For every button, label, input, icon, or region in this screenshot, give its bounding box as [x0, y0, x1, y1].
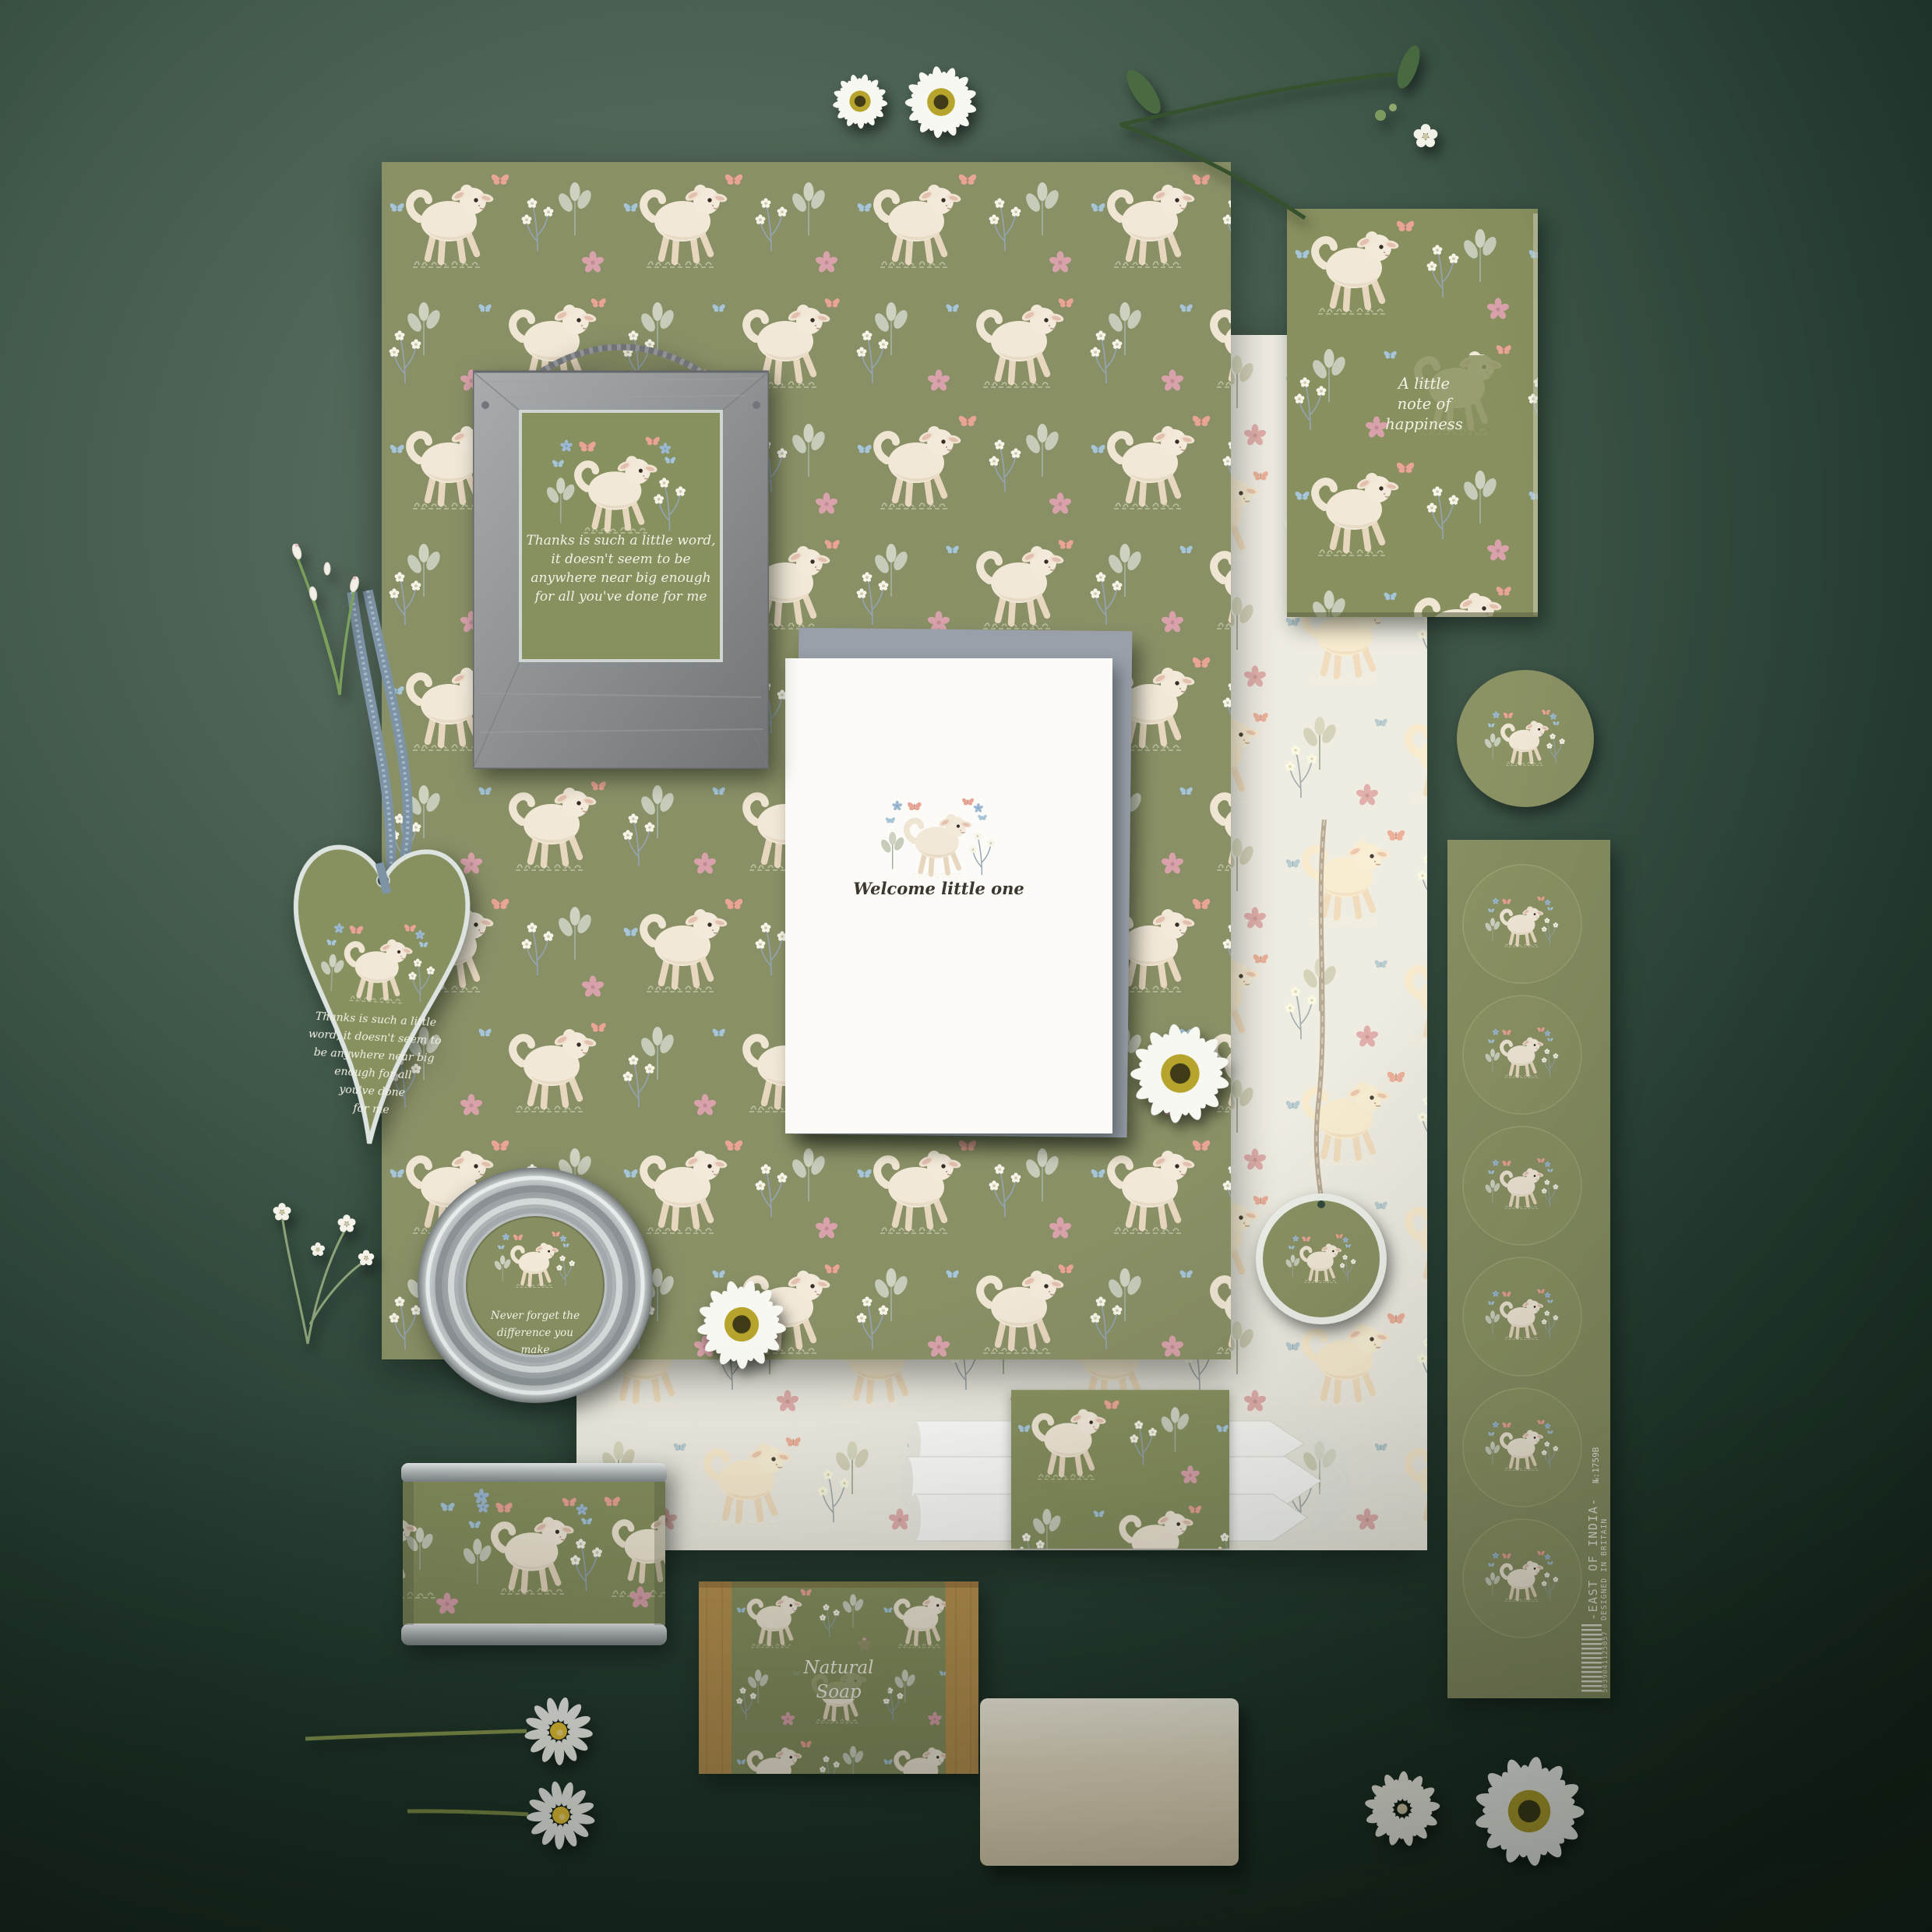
heart-verse: Thanks is such a little word, it doesn't…	[285, 1007, 462, 1123]
lid-caption: Never forget the difference you make	[457, 1307, 613, 1359]
brand-origin: DESIGNED IN BRITAIN	[1600, 1504, 1609, 1620]
daisy-bottom-right-large	[1456, 1739, 1602, 1884]
barcode-digits: 5039041125057	[1602, 1624, 1609, 1693]
daisy-top-small	[827, 68, 894, 135]
greeting-card: Welcome little one	[785, 658, 1112, 1133]
candle-wrap-band	[1011, 1390, 1229, 1549]
sticker-sheet: -EAST OF INDIA- DESIGNED IN BRITAIN №:17…	[1447, 840, 1610, 1698]
daisy-top-large	[899, 60, 983, 144]
tag-twine	[1285, 810, 1363, 1215]
notebook-caption: A little note of happiness	[1310, 374, 1538, 435]
stem-daisy-2	[407, 1775, 601, 1856]
picture-frame: Thanks is such a little word, it doesn't…	[473, 327, 769, 769]
round-sticker	[1455, 668, 1595, 809]
round-ceramic-tag	[1254, 1192, 1388, 1326]
daisy-bottom-right-small	[1350, 1757, 1454, 1861]
tin-top-rim	[401, 1463, 667, 1483]
soap-label: Natural Soap	[732, 1656, 946, 1705]
stem-daisy-1	[305, 1694, 596, 1768]
soap-bar	[980, 1698, 1239, 1866]
tin-bottom-rim	[401, 1624, 667, 1645]
soap-box: Natural Soap	[699, 1581, 978, 1774]
notebook: A little note of happiness	[1287, 209, 1538, 617]
lamb-motif	[879, 799, 995, 877]
flatlay-scene: A little note of happiness -EAST OF INDI…	[0, 0, 1932, 1932]
flower-sprig-lower-left	[273, 1203, 374, 1344]
card-caption: Welcome little one	[785, 879, 1092, 898]
jar-lid: Never forget the difference you make	[417, 1167, 654, 1404]
brand-text: -EAST OF INDIA- DESIGNED IN BRITAIN	[1586, 1504, 1609, 1620]
frame-verse: Thanks is such a little word, it doesn't…	[520, 531, 721, 606]
barcode	[1581, 1624, 1602, 1693]
candle-tin	[400, 1463, 668, 1645]
brand-name: -EAST OF INDIA-	[1586, 1504, 1600, 1620]
brand-sku: №:1759B	[1591, 1426, 1601, 1483]
glass-heart-ornament: Thanks is such a little word, it doesn't…	[266, 828, 488, 1165]
candles-bundle	[896, 1379, 1356, 1558]
